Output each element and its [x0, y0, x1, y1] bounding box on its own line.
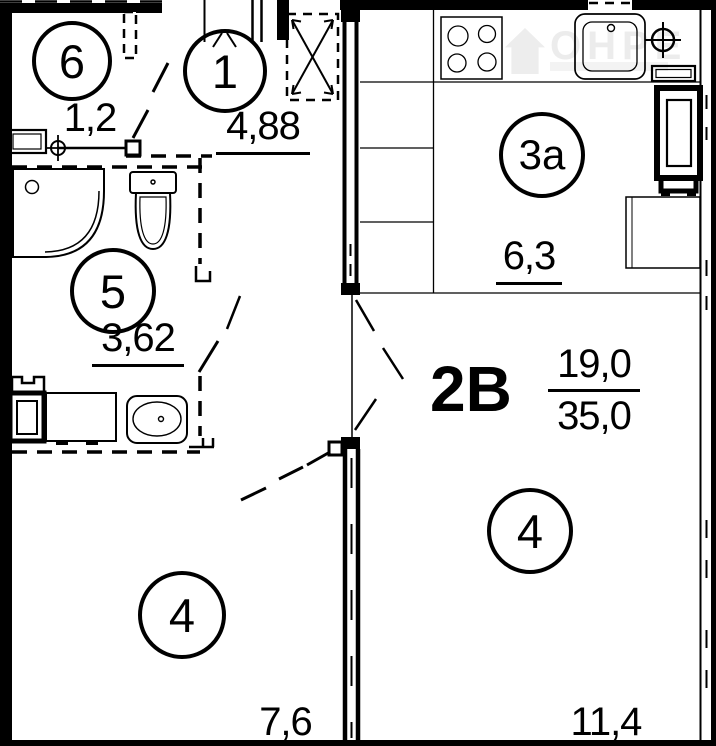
- living-area-value: 19,0: [548, 342, 640, 392]
- area-label-bathroom: 3,62: [92, 318, 184, 367]
- vent-shaft: [287, 14, 338, 100]
- room-number: 3а: [519, 134, 566, 176]
- fridge-icon: [657, 88, 700, 196]
- room-number: 1: [212, 48, 238, 95]
- bathroom-sink-icon: [127, 396, 187, 443]
- room-circle-1: 1: [183, 29, 267, 113]
- bathroom-door: [199, 296, 240, 372]
- room-circle-3a: 3а: [499, 112, 585, 198]
- top-wall-gap: [588, 0, 632, 10]
- total-area-value: 35,0: [548, 392, 640, 439]
- apartment-type-label: 2В: [430, 352, 512, 426]
- area-label-hall: 4,88: [216, 106, 310, 155]
- room-number: 6: [59, 38, 85, 85]
- area-label-kitchen: 6,3: [496, 236, 562, 285]
- shower-icon: [13, 169, 104, 257]
- desk-icon: [626, 197, 700, 268]
- entrance-door: [124, 12, 136, 58]
- stove-icon: [441, 17, 502, 79]
- toilet-icon: [130, 172, 176, 249]
- plumbing-riser-kitchen-icon: [645, 22, 681, 58]
- area-label-closet: 1,2: [50, 98, 130, 139]
- room-number: 4: [517, 508, 543, 555]
- kitchen-partition-wall: [345, 22, 357, 283]
- vent-grille-icon: [652, 66, 695, 81]
- kitchen-sink-icon: [575, 14, 645, 79]
- bathroom-counter-icon: [46, 393, 116, 445]
- room-circle-6: 6: [32, 21, 112, 101]
- right-wall-lines: [701, 10, 707, 740]
- room-circle-4-right: 4: [487, 488, 573, 574]
- room-number: 5: [100, 268, 126, 315]
- wall-cabinet-icon: [8, 130, 46, 153]
- floor-plan: ОНРЕ: [0, 0, 716, 746]
- washing-machine-icon: [10, 377, 44, 441]
- area-fraction: 19,0 35,0: [548, 342, 640, 439]
- room-number: 4: [169, 592, 195, 639]
- room-divider-wall: [241, 442, 358, 740]
- area-label-room4-left: 7,6: [248, 702, 323, 743]
- area-label-room4-right: 11,4: [556, 702, 656, 743]
- hall-opening: [352, 295, 403, 437]
- room-circle-4-left: 4: [138, 571, 226, 659]
